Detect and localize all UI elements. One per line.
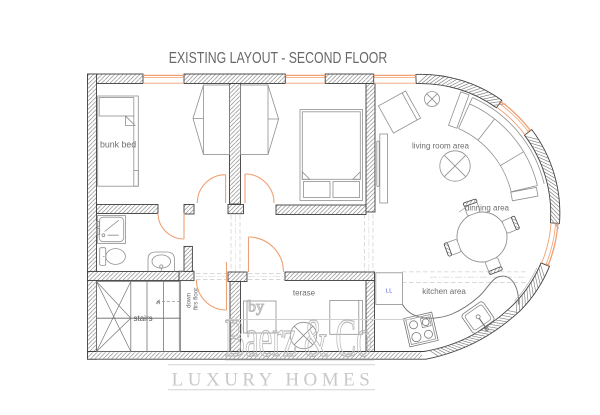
svg-text:bunk bed: bunk bed <box>100 140 136 150</box>
svg-text:firs floor: firs floor <box>193 288 200 310</box>
svg-text:dinning area: dinning area <box>465 204 510 213</box>
svg-text:LUXURY HOMES: LUXURY HOMES <box>172 370 375 391</box>
svg-text:Baerz & Co: Baerz & Co <box>225 308 372 368</box>
svg-text:terase: terase <box>293 289 316 298</box>
svg-text:living room area: living room area <box>412 142 469 151</box>
svg-text:stairs: stairs <box>134 314 153 323</box>
svg-text:LL: LL <box>386 289 393 295</box>
svg-text:5: 5 <box>156 301 162 304</box>
svg-text:EXISTING LAYOUT - SECOND FLOOR: EXISTING LAYOUT - SECOND FLOOR <box>169 49 387 67</box>
svg-text:kitchen area: kitchen area <box>422 287 466 296</box>
svg-text:down: down <box>186 292 193 308</box>
